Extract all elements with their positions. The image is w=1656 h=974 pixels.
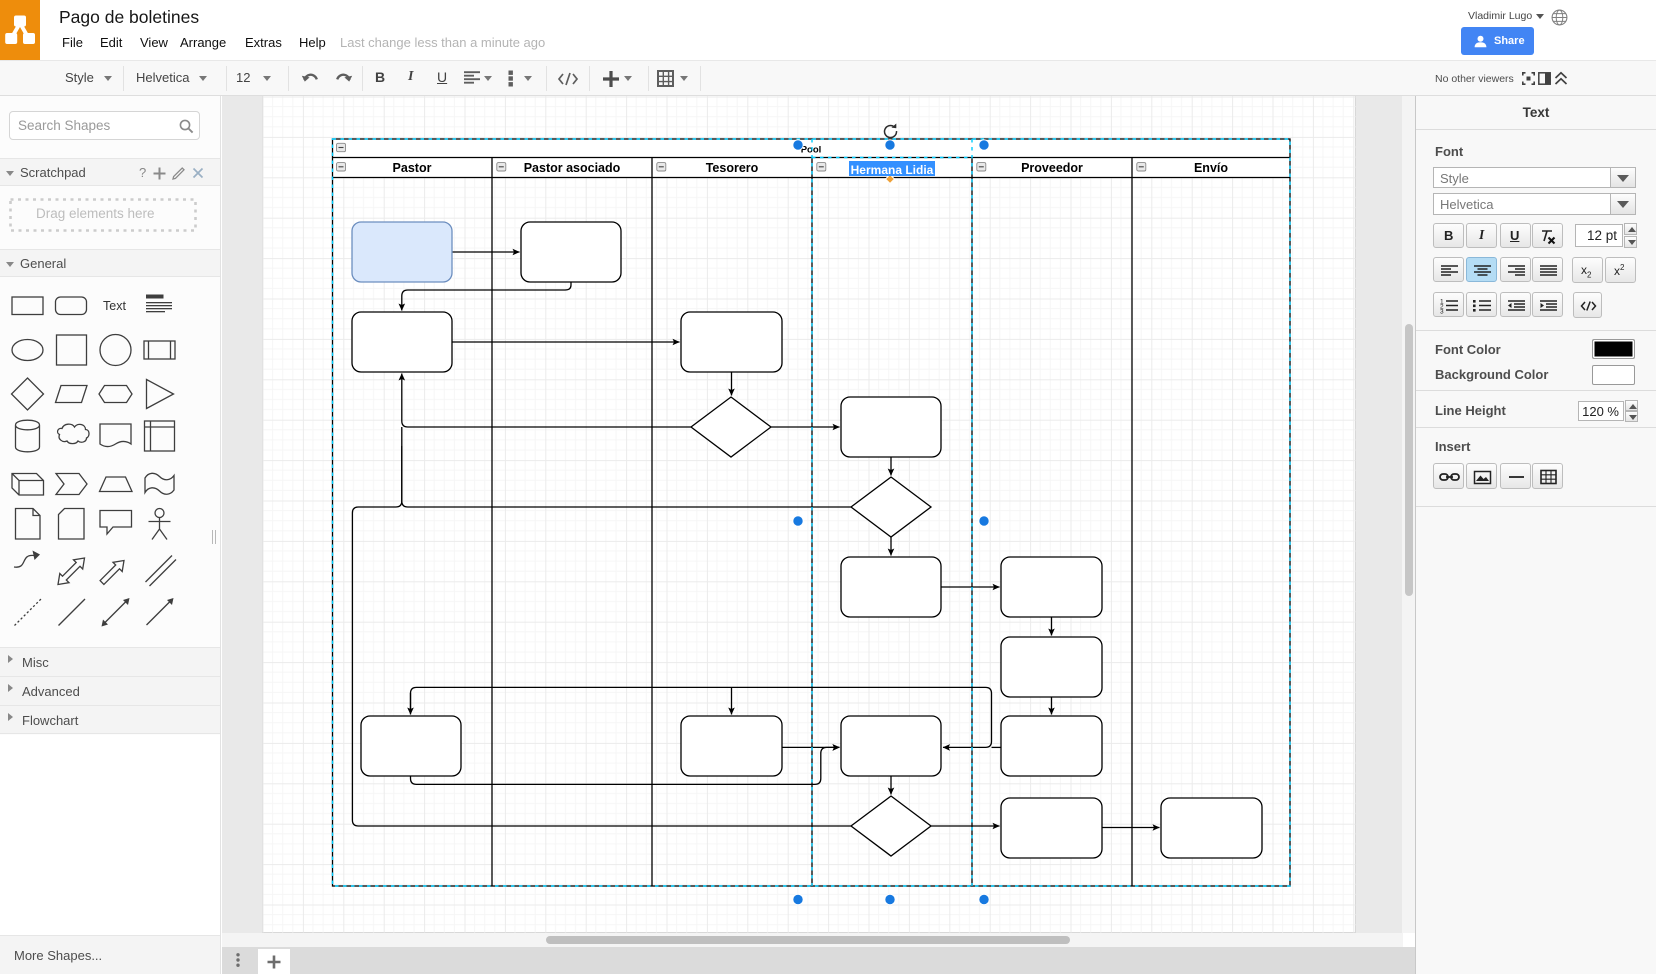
svg-text:Pastor asociado: Pastor asociado (524, 161, 621, 175)
svg-text:Proveedor: Proveedor (1021, 161, 1083, 175)
svg-text:Pool: Pool (801, 145, 822, 156)
svg-text:Envío: Envío (1194, 161, 1228, 175)
svg-text:Tesorero: Tesorero (706, 161, 759, 175)
svg-text:3: 3 (1440, 309, 1444, 316)
svg-text:Pastor: Pastor (393, 161, 432, 175)
svg-text:Text: Text (103, 299, 126, 313)
